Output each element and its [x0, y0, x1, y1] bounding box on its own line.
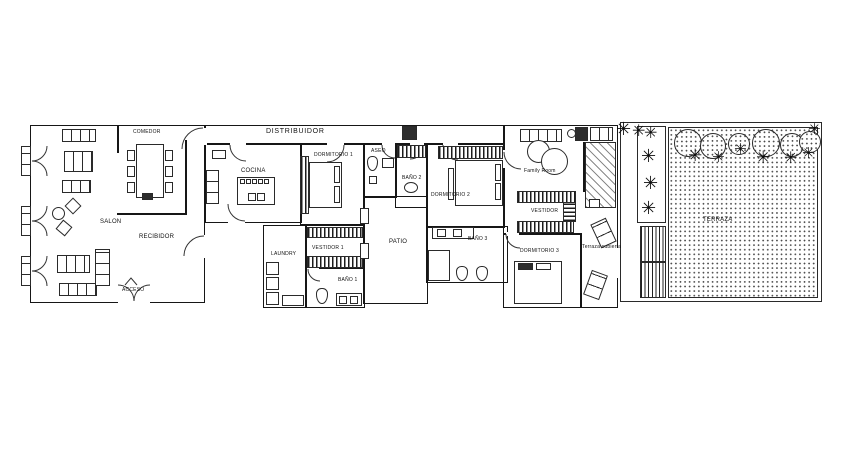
chair-icon [165, 182, 173, 193]
palm-tree-icon: ✳ [712, 150, 725, 165]
french-door-icon [32, 146, 47, 176]
window-shutter-icon [21, 256, 31, 286]
sink-icon [248, 193, 256, 201]
basin-icon [437, 229, 446, 237]
round-table-icon [52, 207, 65, 220]
wardrobe-icon [517, 221, 574, 233]
room-label-vestidor1: VESTIDOR 1 [312, 245, 344, 252]
burner-icon [246, 179, 251, 184]
wall-comedor-bottom [117, 213, 187, 215]
sink-icon [257, 193, 265, 201]
door-arc-icon [506, 234, 520, 248]
burner-icon [264, 179, 269, 184]
palm-tree-icon: ✳ [802, 146, 815, 161]
wall-salon-comedor [117, 125, 119, 153]
sink-icon [404, 182, 418, 193]
pillow-icon [334, 166, 340, 183]
washer-icon [266, 262, 279, 275]
side-table-icon [95, 249, 110, 286]
door-gap-terraza [616, 248, 620, 278]
door-arc-icon [228, 204, 245, 221]
floor-plan: ✳ ✳ ✳ ✳ ✳ ✳ ✳ ✳ ✳ ✳ ✳ ✳ ✳ COMEDOR DISTRI… [0, 0, 843, 454]
room-label-dormitorio1: DORMITORIO 1 [314, 152, 353, 159]
basin-icon [339, 296, 347, 304]
room-label-family-room: Family Room [524, 168, 556, 175]
duct-shaft-icon [402, 126, 417, 140]
palm-tree-icon: ✳ [644, 125, 657, 141]
shower-icon [428, 250, 450, 281]
terraza-stairs-lower [640, 262, 666, 298]
cabinet-icon [575, 127, 588, 141]
laundry-counter-icon [282, 295, 304, 306]
chair-icon [142, 193, 153, 200]
door-arc-icon [184, 236, 204, 256]
burner-icon [240, 179, 245, 184]
chair-icon [127, 166, 135, 177]
door-arc-icon [230, 145, 246, 161]
wardrobe-icon [300, 156, 309, 214]
planter-box-icon [589, 199, 600, 208]
palm-tree-icon: ✳ [756, 150, 770, 167]
basin-icon [350, 296, 358, 304]
room-label-laundry: LAUNDRY [271, 251, 296, 258]
room-label-distribuidor: DISTRIBUIDOR [266, 128, 325, 135]
chair-icon [127, 150, 135, 161]
pillow-icon [518, 263, 533, 270]
palm-tree-icon: ✳ [641, 148, 656, 166]
room-label-recibidor: RECIBIDOR [139, 234, 174, 241]
chair-icon [165, 150, 173, 161]
sofa-icon [59, 283, 97, 296]
wall-comedor-right [185, 140, 187, 215]
room-label-cocina: COCINA [241, 168, 266, 175]
room-label-patio: PATIO [389, 239, 407, 246]
room-label-dormitorio2: DORMITORIO 2 [431, 192, 470, 199]
shower-icon [397, 145, 426, 158]
room-patio [363, 196, 428, 304]
kitchen-counter-icon [206, 170, 219, 204]
window-shutter-icon [21, 146, 31, 176]
basin-icon [453, 229, 462, 237]
loveseat-icon [62, 180, 91, 193]
palm-tree-icon: ✳ [734, 142, 747, 157]
room-label-bano2: BAÑO 2 [402, 175, 422, 182]
palm-tree-icon: ✳ [808, 122, 821, 137]
door-arc-icon [504, 152, 521, 169]
wardrobe-icon [438, 146, 503, 159]
french-door-icon [32, 256, 47, 286]
dryer-icon [266, 277, 279, 290]
corridor-distribuidor [205, 125, 505, 145]
palm-tree-icon: ✳ [643, 175, 658, 193]
palm-tree-icon: ✳ [688, 148, 702, 165]
loveseat-icon [64, 151, 93, 172]
acceso-arrow-icon [124, 277, 138, 285]
palm-tree-icon: ✳ [641, 200, 656, 218]
french-door-icon [32, 206, 47, 236]
shelf-icon [590, 127, 613, 141]
door-gap-comedor [203, 128, 207, 145]
wardrobe-icon [563, 202, 576, 222]
door-arc-icon [308, 269, 320, 281]
dining-table-icon [136, 144, 164, 198]
chair-icon [127, 182, 135, 193]
door-arc-icon [182, 128, 203, 149]
palm-tree-icon: ✳ [784, 150, 797, 166]
sofa-icon [62, 129, 96, 142]
wardrobe-icon [307, 256, 363, 268]
room-label-salon: SALON [100, 219, 121, 226]
room-label-bano3: BAÑO 3 [468, 236, 488, 243]
sink-icon [382, 158, 394, 168]
appliance-icon [266, 292, 279, 305]
window-icon [360, 243, 369, 259]
wardrobe-icon [307, 227, 363, 238]
room-label-dormitorio3: DORMITORIO 3 [520, 248, 559, 255]
room-label-bano1: BAÑO 1 [338, 277, 358, 284]
window-shutter-icon [21, 206, 31, 236]
pillow-icon [334, 186, 340, 203]
terraza-stairs-upper [640, 226, 666, 262]
pillow-icon [495, 164, 501, 181]
burner-icon [258, 179, 263, 184]
door-gap-entry [118, 301, 150, 305]
window-icon [360, 208, 369, 224]
room-label-aseo: ASEO [371, 148, 386, 155]
loveseat-icon [57, 255, 90, 273]
kitchen-cabinet-icon [212, 150, 226, 159]
burner-icon [252, 179, 257, 184]
palm-tree-icon: ✳ [616, 121, 631, 139]
room-label-comedor: COMEDOR [133, 129, 161, 136]
room-label-vestidor: VESTIDOR [531, 208, 558, 215]
cabinet-icon [369, 176, 377, 184]
room-label-terraza: TERRAZA [703, 217, 732, 224]
chair-icon [165, 166, 173, 177]
room-label-acceso: ACCESO [122, 287, 144, 294]
room-label-terraza-cubierta: Terraza cubierta [582, 244, 621, 251]
pillow-icon [495, 183, 501, 200]
pillow-icon [536, 263, 551, 270]
